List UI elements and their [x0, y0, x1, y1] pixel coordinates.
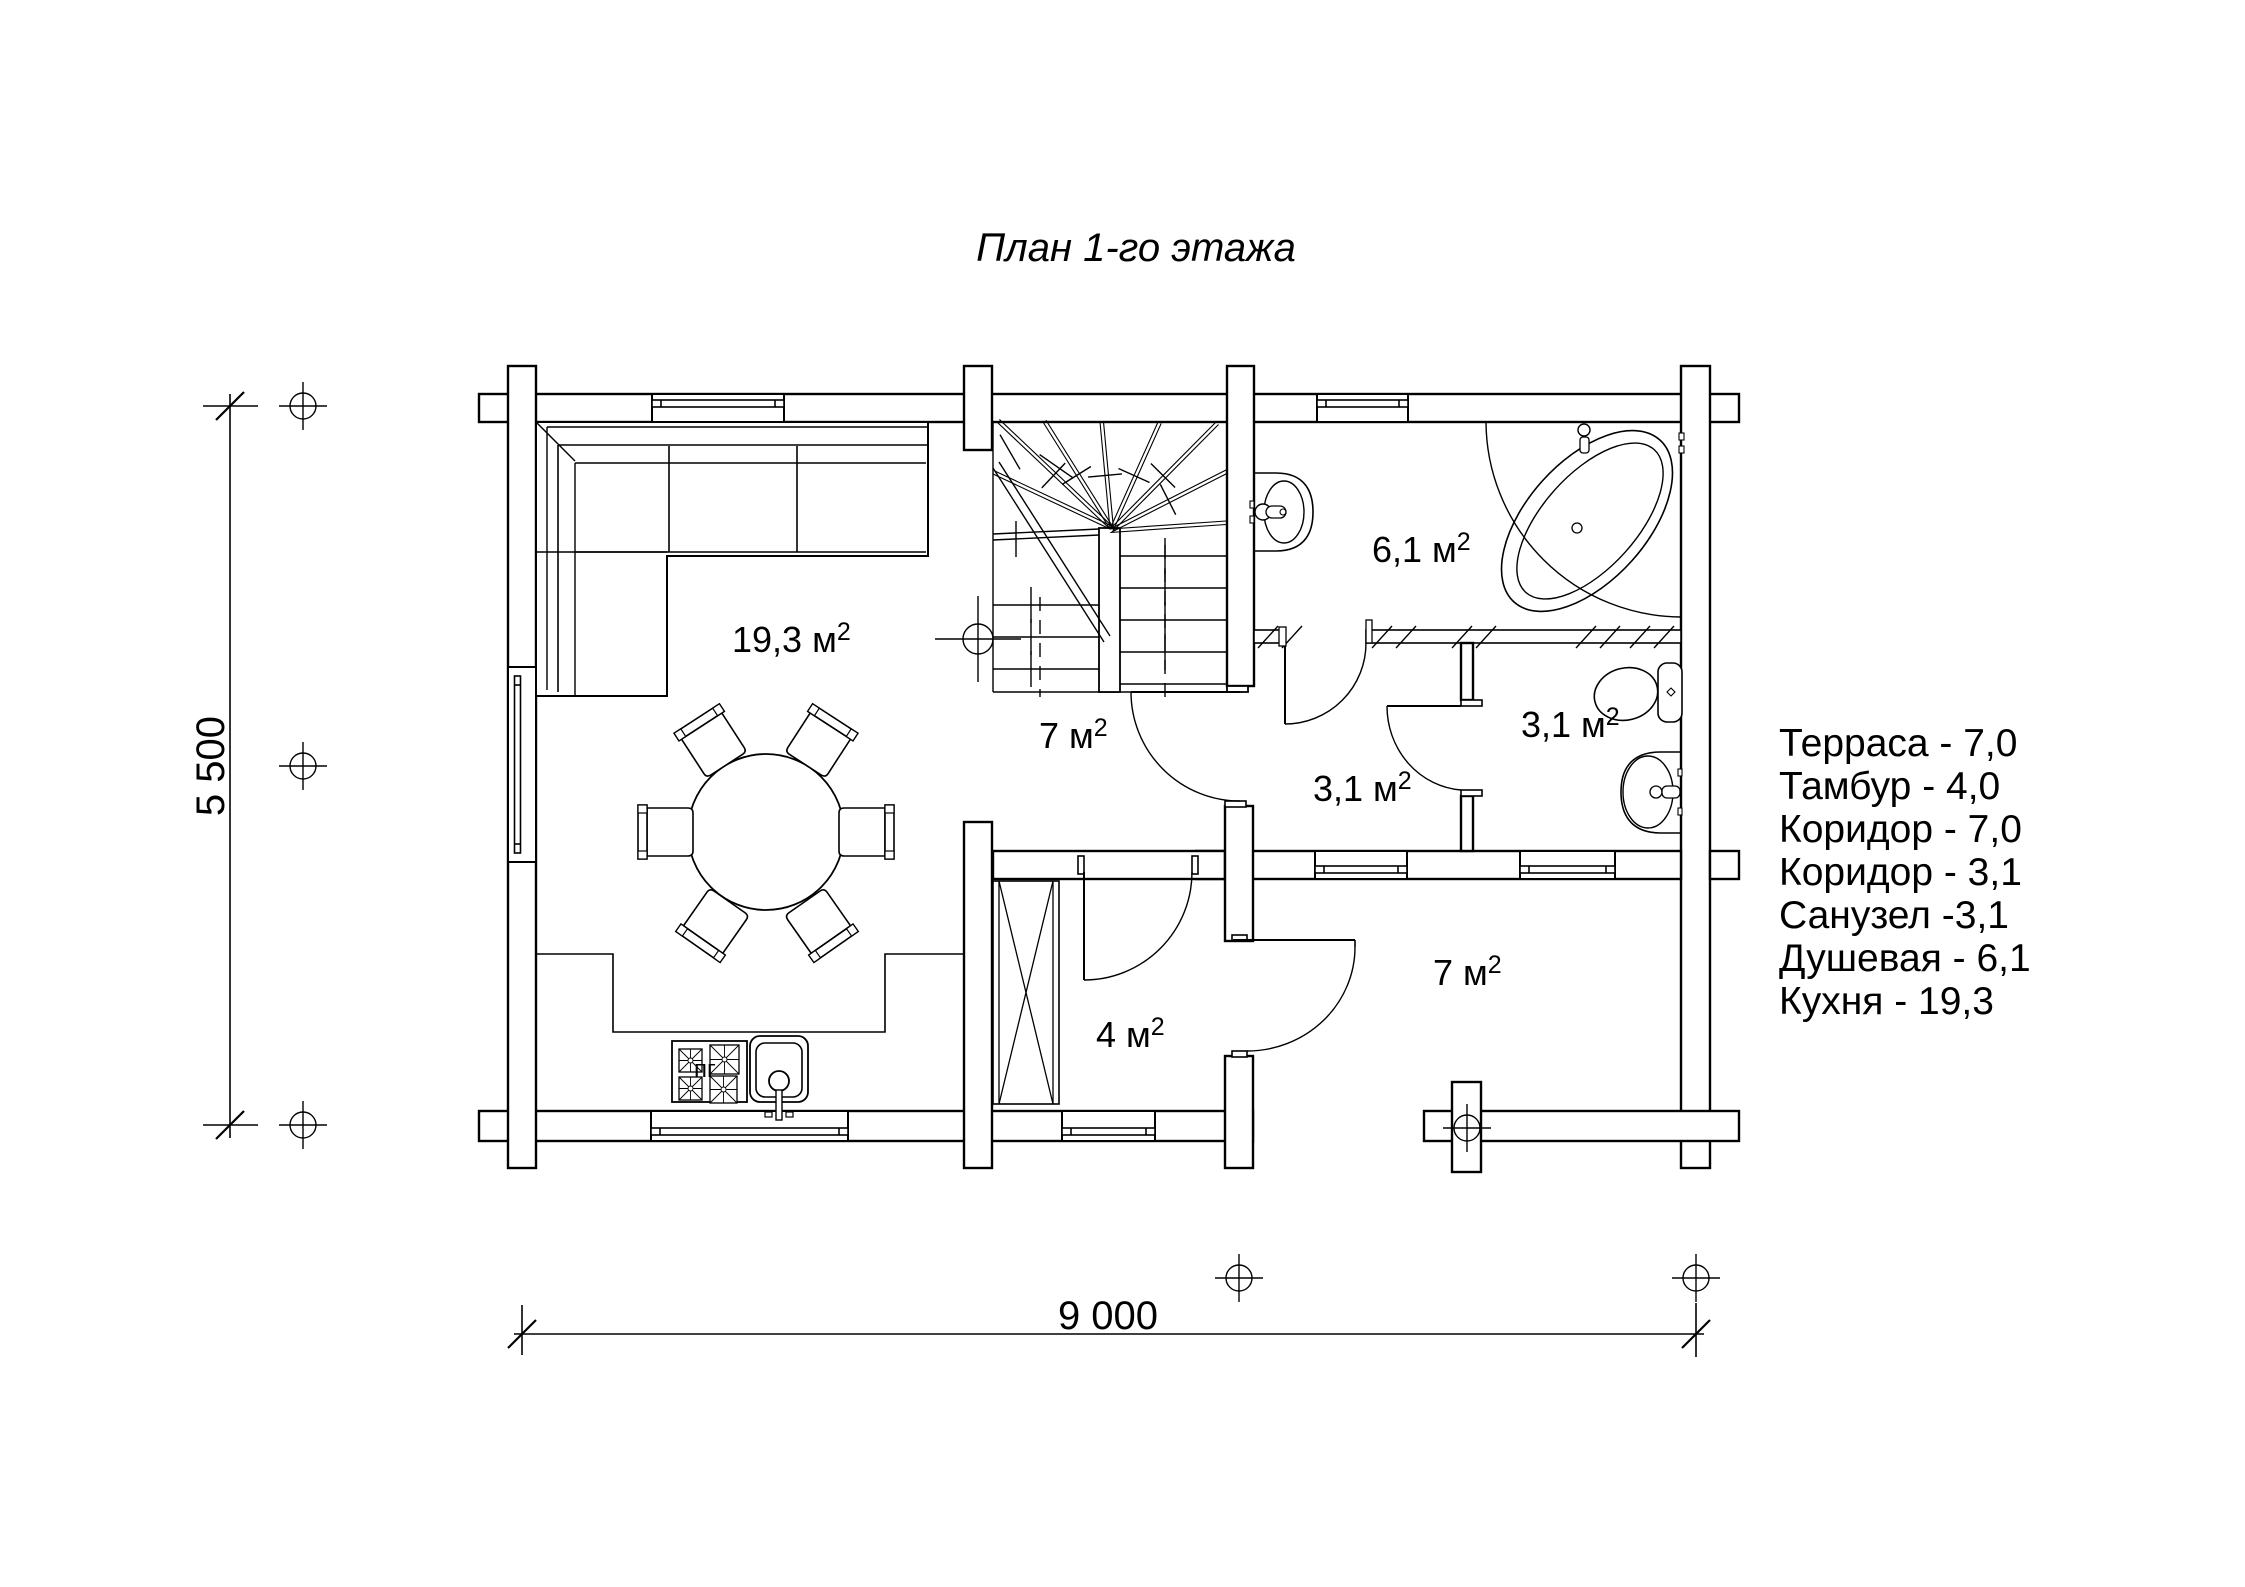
svg-text:19,3 м2: 19,3 м2: [732, 618, 851, 660]
svg-text:План 1-го этажа: План 1-го этажа: [976, 226, 1296, 270]
svg-text:Кухня - 19,3: Кухня - 19,3: [1779, 980, 1994, 1023]
svg-text:3,1 м2: 3,1 м2: [1313, 767, 1412, 809]
svg-text:Душевая - 6,1: Душевая - 6,1: [1779, 937, 2031, 980]
svg-text:6,1 м2: 6,1 м2: [1372, 528, 1471, 570]
svg-text:Терраса - 7,0: Терраса - 7,0: [1779, 722, 2017, 765]
svg-text:пг: пг: [694, 1056, 716, 1083]
svg-text:Тамбур - 4,0: Тамбур - 4,0: [1779, 765, 2000, 808]
svg-text:5 500: 5 500: [189, 716, 233, 816]
svg-text:3,1 м2: 3,1 м2: [1521, 703, 1620, 745]
svg-text:Коридор - 3,1: Коридор - 3,1: [1779, 851, 2022, 894]
svg-text:Коридор - 7,0: Коридор - 7,0: [1779, 808, 2022, 851]
svg-text:Санузел -3,1: Санузел -3,1: [1779, 894, 2009, 937]
svg-text:9 000: 9 000: [1058, 1294, 1158, 1338]
